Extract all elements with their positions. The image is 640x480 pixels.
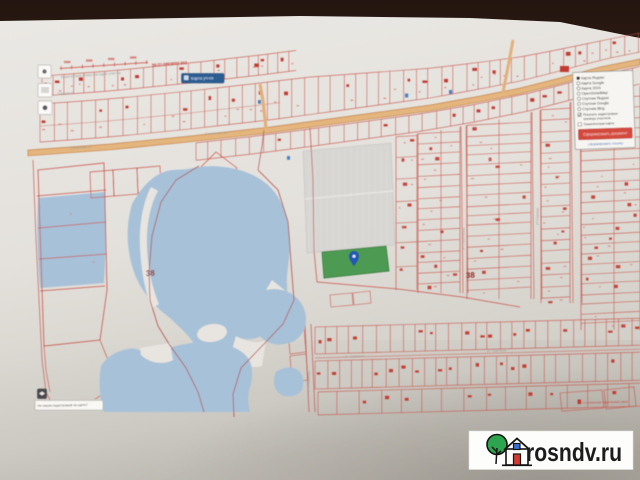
svg-text:38: 38 xyxy=(146,269,156,278)
svg-text:38: 38 xyxy=(466,271,476,280)
svg-text:ул. Заречная: ул. Заречная xyxy=(487,348,507,353)
svg-text:ул Строителей: ул Строителей xyxy=(461,228,466,250)
svg-text:Карта 2GIS: Карта 2GIS xyxy=(581,86,601,91)
svg-text:Карта уч-ка: Карта уч-ка xyxy=(191,75,214,81)
svg-text:Спутник Bing: Спутник Bing xyxy=(582,106,604,111)
svg-text:Карта Яндекс: Карта Яндекс xyxy=(581,76,605,81)
svg-text:Карта Google: Карта Google xyxy=(581,81,604,86)
svg-text:11: 11 xyxy=(92,260,96,264)
svg-text:ул Садовая: ул Садовая xyxy=(535,207,540,225)
svg-text:ул. Заречная: ул. Заречная xyxy=(345,354,365,359)
svg-text:rosndv.ru: rosndv.ru xyxy=(526,437,622,467)
svg-text:пер Набережный: пер Набережный xyxy=(306,371,311,395)
